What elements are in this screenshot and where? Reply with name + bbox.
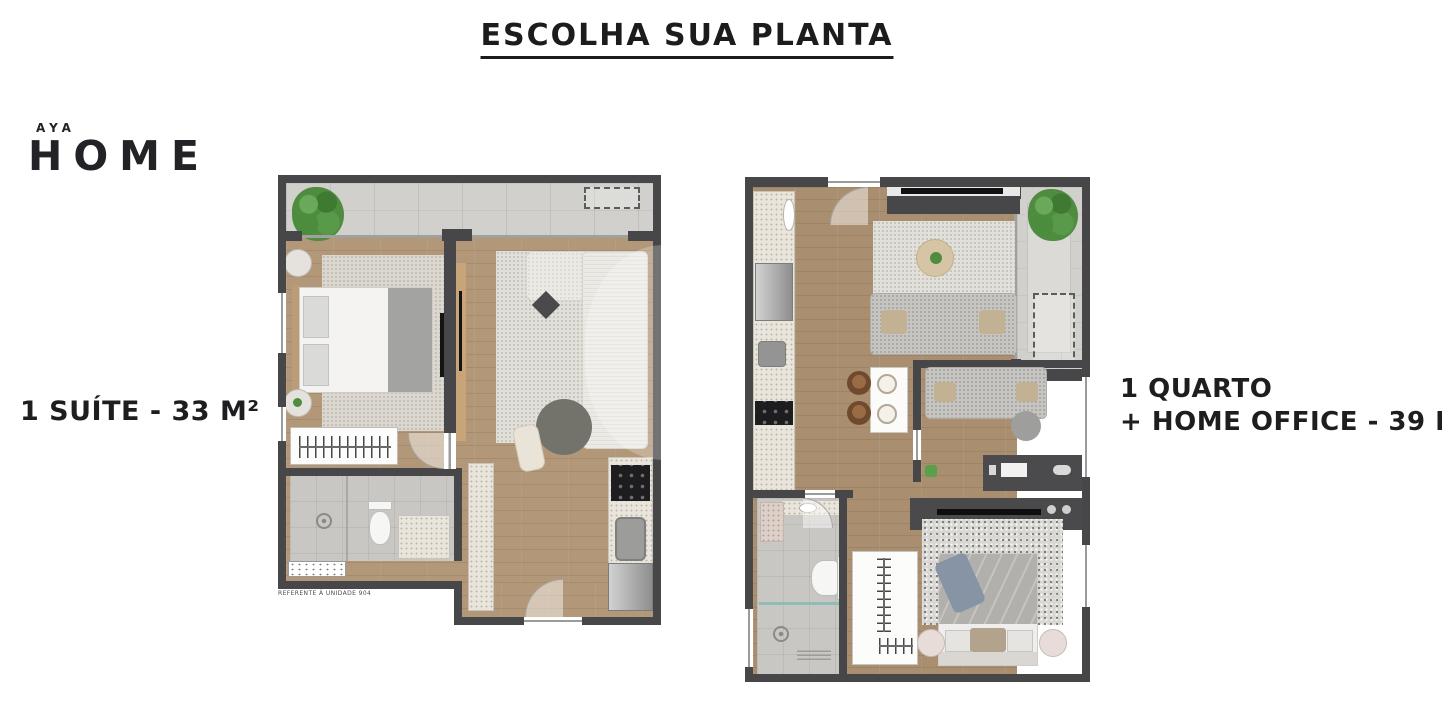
sink-icon <box>783 199 795 231</box>
bathroom-wall-right <box>839 490 847 674</box>
outer-wall-right <box>653 175 661 625</box>
outer-wall-left <box>278 175 286 589</box>
cooktop-icon <box>611 465 650 501</box>
plant-icon <box>293 398 302 407</box>
shower-head-icon <box>316 513 332 529</box>
plant-icon <box>930 252 942 264</box>
plan-label-line1: 1 QUARTO <box>1120 373 1442 406</box>
window <box>745 609 753 667</box>
fridge <box>755 263 793 321</box>
entry-door-gap <box>828 177 880 187</box>
window <box>1082 545 1090 607</box>
office-door-gap <box>913 430 921 460</box>
outer-wall-left <box>745 177 753 682</box>
pillow <box>303 296 329 338</box>
window <box>278 407 286 441</box>
closet <box>852 551 918 665</box>
sofa <box>582 251 648 449</box>
bedroom-living-wall <box>444 237 456 437</box>
plant-icon <box>1028 189 1078 241</box>
fridge <box>608 563 653 611</box>
pillow <box>303 344 329 386</box>
office-wall-left <box>913 368 921 430</box>
toilet-icon <box>366 501 394 547</box>
unit-reference-note: REFERENTE À UNIDADE 904 <box>278 590 371 597</box>
page-title: ESCOLHA SUA PLANTA <box>481 18 894 59</box>
stool <box>847 401 871 425</box>
bathroom-floor <box>290 475 454 561</box>
outer-wall-top <box>745 177 1090 187</box>
plate-icon <box>877 374 897 394</box>
sofa <box>870 293 1017 355</box>
pillow <box>1016 382 1038 402</box>
bathroom-door-gap <box>805 490 835 498</box>
sink-icon <box>615 517 646 561</box>
stool <box>847 371 871 395</box>
cooktop-icon <box>755 401 793 425</box>
tv-icon <box>901 188 1003 194</box>
desk-lamp-icon <box>989 465 996 475</box>
kitchen-counter <box>468 463 494 611</box>
microwave <box>758 341 786 367</box>
tv-niche-wall <box>887 196 1020 214</box>
decor-dot <box>1047 505 1056 514</box>
toilet-bowl <box>369 511 391 545</box>
tv-icon <box>937 509 1041 515</box>
bed-headboard <box>939 652 1037 665</box>
window <box>1082 377 1090 477</box>
floorplan-1-suite[interactable] <box>278 175 661 625</box>
plan-label-line2: + HOME OFFICE - 39 M² <box>1120 406 1442 439</box>
bathroom-floor <box>757 498 847 674</box>
bed <box>299 287 433 393</box>
desk <box>983 455 1082 491</box>
closet <box>290 427 398 465</box>
wall-segment <box>628 231 653 241</box>
pillow <box>934 382 956 402</box>
bath-rug <box>760 502 784 542</box>
entry-door-gap <box>524 617 582 625</box>
bath-mat <box>288 561 346 577</box>
plant-icon <box>925 465 937 477</box>
shower-drain-icon <box>797 648 831 660</box>
floorplan-1-quarto-home-office[interactable] <box>745 177 1090 682</box>
bedroom-door-gap <box>444 433 456 469</box>
brand-logo: AYA HOME <box>28 121 210 178</box>
pillow <box>881 310 907 334</box>
coffee-table <box>916 239 954 277</box>
ac-condenser-slot <box>1033 293 1075 367</box>
pillow <box>945 630 971 652</box>
bathroom-wall-top <box>753 490 853 498</box>
shower-head-icon <box>773 626 789 642</box>
closet-rail <box>883 558 885 632</box>
toilet-icon <box>811 560 839 596</box>
bed-blanket <box>388 288 432 392</box>
bathroom-wall <box>454 468 462 561</box>
wall-segment <box>286 231 302 241</box>
tv-icon <box>459 291 462 371</box>
pillow <box>979 310 1005 334</box>
shower-glass <box>346 475 348 561</box>
page: ESCOLHA SUA PLANTA AYA HOME <box>0 0 1442 703</box>
shower-glass <box>759 602 845 605</box>
bed-headboard <box>292 285 299 395</box>
nightstand <box>917 629 945 657</box>
outer-wall-bottom <box>278 581 462 589</box>
plate-icon <box>877 404 897 424</box>
window <box>278 293 286 353</box>
pillow-accent <box>970 628 1006 652</box>
brand-logo-home: HOME <box>28 135 210 178</box>
plan-label-1-quarto-home-office: 1 QUARTO + HOME OFFICE - 39 M² <box>1120 373 1442 440</box>
closet-rail <box>299 446 391 448</box>
side-table <box>284 389 312 417</box>
desk-item <box>1053 465 1071 475</box>
shower-pad <box>398 515 450 559</box>
ottoman <box>536 399 592 455</box>
outer-wall-bottom <box>745 674 1090 682</box>
toilet-tank <box>368 501 392 510</box>
outer-wall-top <box>278 175 661 183</box>
pouf <box>284 249 312 277</box>
laptop-icon <box>1001 463 1027 477</box>
pillow <box>1007 630 1033 652</box>
bed <box>938 553 1038 666</box>
office-wall-left <box>913 460 921 482</box>
plan-label-1-suite: 1 SUÍTE - 33 M² <box>20 396 260 427</box>
closet-rail <box>879 645 913 647</box>
nightstand <box>1039 629 1067 657</box>
decor-dot <box>1062 505 1071 514</box>
bathroom-wall <box>286 468 462 476</box>
ac-condenser-slot <box>584 187 640 209</box>
tv-icon <box>440 313 444 377</box>
desk-chair <box>1011 411 1041 441</box>
